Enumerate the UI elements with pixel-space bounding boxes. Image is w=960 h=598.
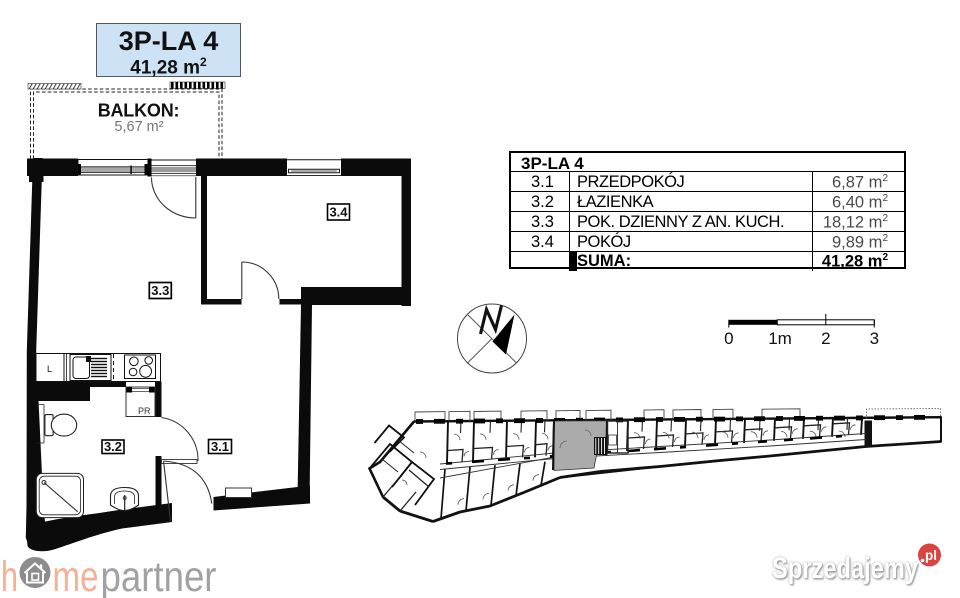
svg-text:partner: partner — [101, 553, 217, 598]
svg-text:1m: 1m — [768, 329, 792, 348]
svg-text:3.1: 3.1 — [211, 439, 229, 454]
svg-text:h: h — [1, 553, 18, 598]
svg-text:PR: PR — [138, 406, 151, 416]
svg-text:3.4: 3.4 — [329, 205, 348, 220]
svg-text:me: me — [53, 553, 99, 598]
svg-text:BALKON:: BALKON: — [98, 101, 180, 121]
svg-text:Sprzedajemy: Sprzedajemy — [772, 552, 918, 585]
svg-text:0: 0 — [724, 329, 733, 348]
svg-text:pl: pl — [925, 548, 937, 563]
svg-text:3.3: 3.3 — [151, 283, 169, 298]
svg-text:2: 2 — [821, 329, 830, 348]
svg-text:3: 3 — [870, 329, 879, 348]
svg-text:L: L — [47, 364, 52, 374]
svg-text:3.2: 3.2 — [104, 439, 122, 454]
svg-text:5,67 m²: 5,67 m² — [114, 119, 163, 135]
